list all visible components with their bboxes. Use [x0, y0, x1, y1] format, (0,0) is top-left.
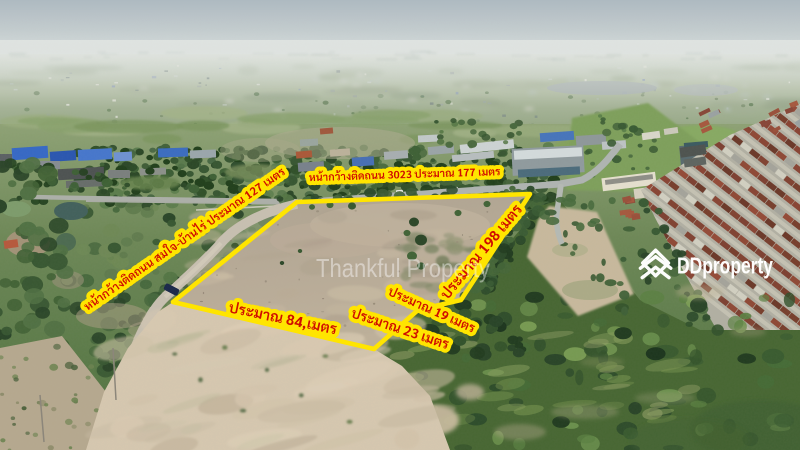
svg-text:Thankful Property: Thankful Property	[316, 253, 490, 283]
svg-text:DDproperty: DDproperty	[677, 253, 773, 279]
